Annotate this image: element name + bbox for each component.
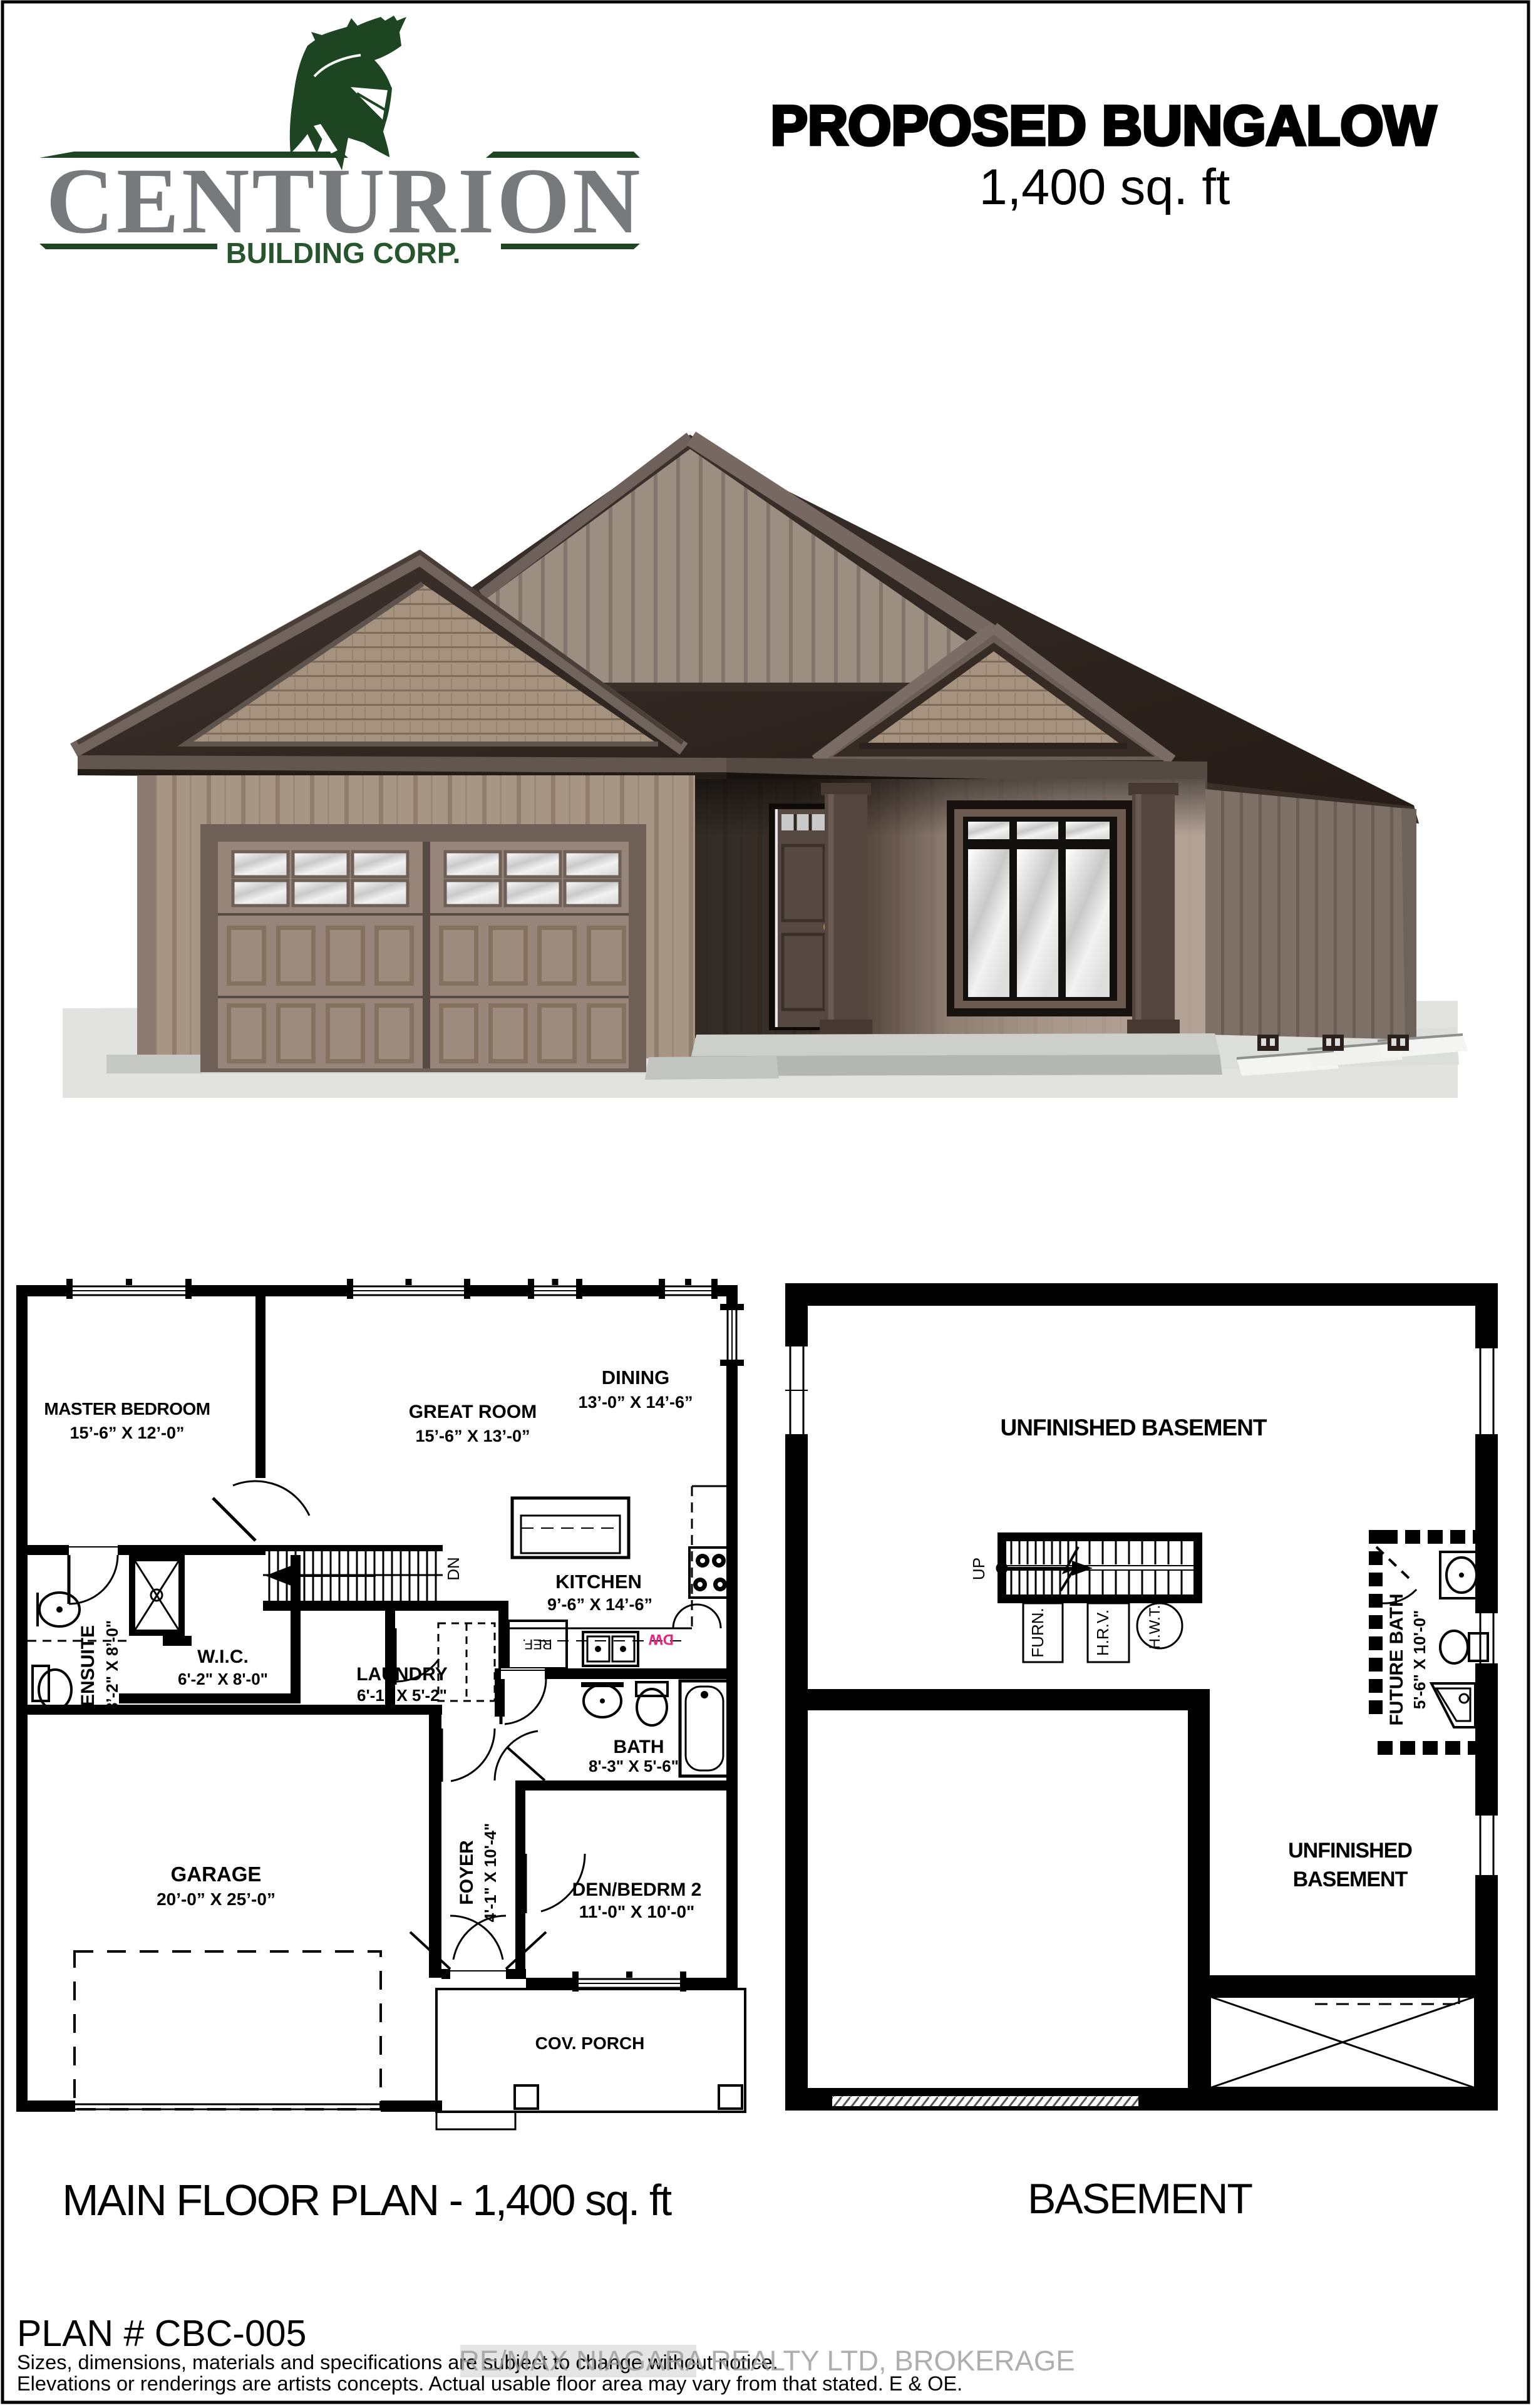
svg-text:Elevations or renderings are a: Elevations or renderings are artists con… (17, 2372, 962, 2395)
svg-text:UP: UP (969, 1558, 988, 1580)
svg-text:DEN/BEDRM 2: DEN/BEDRM 2 (572, 1879, 702, 1900)
svg-text:8'-3" X 5'-6": 8'-3" X 5'-6" (589, 1757, 679, 1775)
svg-text:H.R.V.: H.R.V. (1093, 1610, 1112, 1656)
svg-text:6'-2" X 8'-0": 6'-2" X 8'-0" (178, 1670, 268, 1688)
svg-text:6'-1" X 5'-2": 6'-1" X 5'-2" (357, 1686, 447, 1705)
svg-text:20’-0” X 25’-0”: 20’-0” X 25’-0” (157, 1889, 276, 1909)
svg-text:UNFINISHED: UNFINISHED (1288, 1839, 1412, 1863)
svg-text:MASTER BEDROOM: MASTER BEDROOM (44, 1399, 210, 1418)
svg-text:LAUNDRY: LAUNDRY (356, 1664, 448, 1685)
svg-text:9’-6” X 14’-6”: 9’-6” X 14’-6” (547, 1595, 652, 1614)
svg-text:FURN.: FURN. (1028, 1608, 1047, 1657)
svg-text:4'-1" X 10'-4": 4'-1" X 10'-4" (481, 1823, 500, 1922)
svg-text:15’-6” X 12’-0”: 15’-6” X 12’-0” (70, 1424, 184, 1442)
svg-text:BASEMENT: BASEMENT (1028, 2175, 1252, 2223)
svg-text:FOYER: FOYER (456, 1840, 477, 1905)
svg-text:GREAT ROOM: GREAT ROOM (409, 1402, 537, 1422)
svg-text:DINING: DINING (602, 1367, 670, 1388)
svg-text:13’-0” X 14’-6”: 13’-0” X 14’-6” (578, 1393, 693, 1412)
svg-text:ENSUITE: ENSUITE (78, 1625, 98, 1707)
svg-text:FUTURE BATH: FUTURE BATH (1386, 1593, 1407, 1725)
svg-text:BATH: BATH (613, 1737, 664, 1757)
svg-text:5'-6" X 10'-0": 5'-6" X 10'-0" (1410, 1610, 1429, 1709)
svg-text:DW: DW (649, 1631, 674, 1648)
svg-text:UNFINISHED BASEMENT: UNFINISHED BASEMENT (1000, 1415, 1267, 1440)
svg-text:8’-2" X 8’-0": 8’-2" X 8’-0" (103, 1620, 121, 1712)
svg-text:MAIN FLOOR PLAN - 1,400 sq. ft: MAIN FLOOR PLAN - 1,400 sq. ft (62, 2176, 671, 2225)
svg-text:1,400 sq. ft: 1,400 sq. ft (979, 159, 1230, 215)
svg-text:DN: DN (444, 1557, 463, 1581)
svg-text:W.I.C.: W.I.C. (197, 1646, 249, 1667)
svg-text:PLAN # CBC-005: PLAN # CBC-005 (17, 2313, 306, 2354)
svg-text:BASEMENT: BASEMENT (1293, 1868, 1408, 1891)
svg-text:COV. PORCH: COV. PORCH (535, 2033, 645, 2053)
svg-text:PROPOSED BUNGALOW: PROPOSED BUNGALOW (770, 94, 1436, 157)
svg-text:11'-0" X 10'-0": 11'-0" X 10'-0" (579, 1902, 695, 1921)
svg-text:REF.: REF. (522, 1636, 552, 1652)
svg-text:H.W.T.: H.W.T. (1147, 1605, 1163, 1650)
svg-text:KITCHEN: KITCHEN (555, 1571, 642, 1593)
svg-text:15’-6” X 13’-0”: 15’-6” X 13’-0” (415, 1427, 530, 1445)
svg-text:GARAGE: GARAGE (171, 1863, 262, 1886)
svg-text:BUILDING CORP.: BUILDING CORP. (226, 237, 461, 269)
